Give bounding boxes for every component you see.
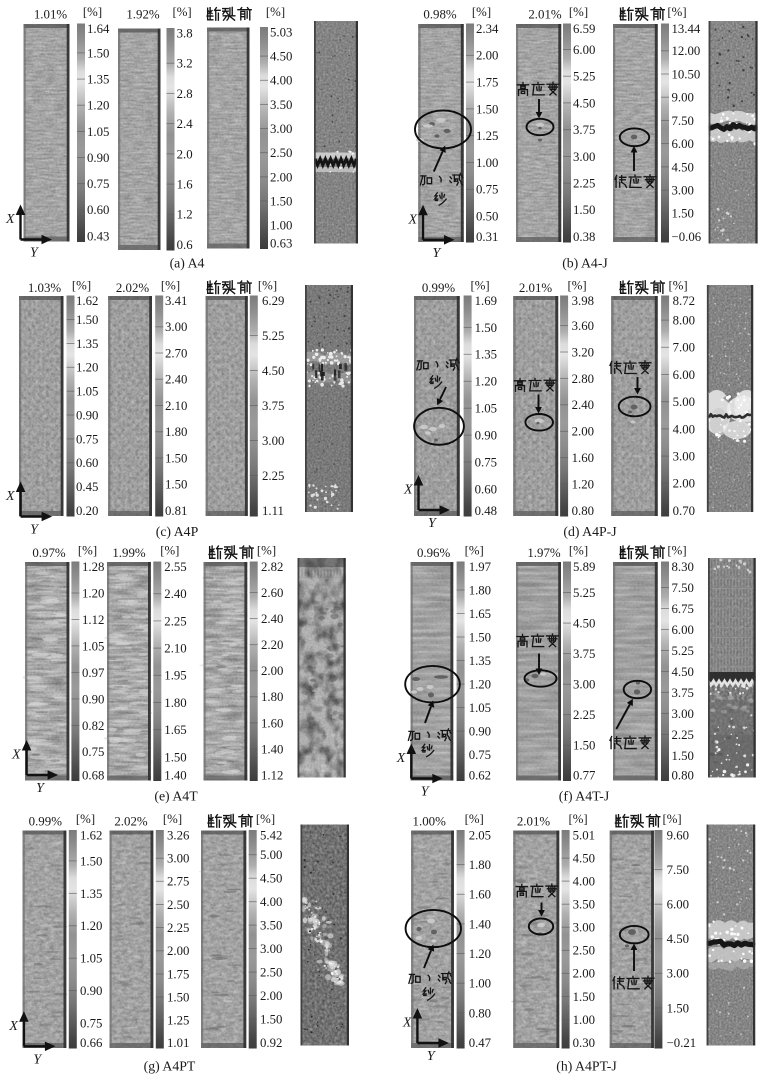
svg-text:[%]: [%] <box>266 5 285 19</box>
svg-text:0.98%: 0.98% <box>423 8 457 22</box>
svg-text:1.69: 1.69 <box>475 294 497 308</box>
svg-text:0.90: 0.90 <box>87 151 109 165</box>
svg-text:0.6: 0.6 <box>177 238 194 252</box>
svg-text:1.12: 1.12 <box>82 613 104 627</box>
svg-text:2.10: 2.10 <box>165 399 187 413</box>
svg-text:6.00: 6.00 <box>672 137 694 151</box>
svg-text:[%]: [%] <box>78 544 97 558</box>
svg-text:[%]: [%] <box>163 812 182 826</box>
svg-text:0.75: 0.75 <box>476 183 498 197</box>
svg-text:1.80: 1.80 <box>261 690 283 704</box>
svg-text:0.68: 0.68 <box>82 768 104 782</box>
svg-text:9.60: 9.60 <box>667 828 689 842</box>
svg-text:0.90: 0.90 <box>469 725 491 739</box>
svg-text:1.35: 1.35 <box>76 337 98 351</box>
svg-text:4.50: 4.50 <box>260 872 282 886</box>
svg-text:2.82: 2.82 <box>261 560 283 574</box>
svg-text:0.43: 0.43 <box>87 229 109 243</box>
svg-text:0.75: 0.75 <box>469 748 491 762</box>
svg-text:6.75: 6.75 <box>672 602 694 616</box>
svg-text:2.25: 2.25 <box>167 921 189 935</box>
svg-text:[%]: [%] <box>569 544 588 558</box>
svg-text:3.00: 3.00 <box>165 320 187 334</box>
svg-text:0.63: 0.63 <box>270 236 292 250</box>
svg-text:6.00: 6.00 <box>667 898 689 912</box>
svg-text:7.50: 7.50 <box>672 581 694 595</box>
svg-text:1.50: 1.50 <box>573 990 595 1004</box>
svg-text:3.00: 3.00 <box>573 678 595 692</box>
svg-text:3.50: 3.50 <box>260 919 282 933</box>
svg-text:1.50: 1.50 <box>672 207 694 221</box>
svg-text:(c) A4P: (c) A4P <box>156 524 199 540</box>
svg-text:2.00: 2.00 <box>270 170 292 184</box>
svg-text:1.50: 1.50 <box>573 739 595 753</box>
svg-text:−0.06: −0.06 <box>672 230 702 244</box>
svg-text:1.25: 1.25 <box>476 129 498 143</box>
svg-text:3.00: 3.00 <box>270 122 292 136</box>
svg-text:2.25: 2.25 <box>573 177 595 191</box>
svg-text:5.03: 5.03 <box>270 25 292 39</box>
svg-text:0.70: 0.70 <box>673 504 695 518</box>
svg-text:1.12: 1.12 <box>261 768 283 782</box>
svg-text:1.05: 1.05 <box>475 402 497 416</box>
svg-text:13.44: 13.44 <box>672 22 701 36</box>
svg-text:1.20: 1.20 <box>469 947 491 961</box>
svg-text:[%]: [%] <box>472 5 491 19</box>
svg-text:2.70: 2.70 <box>165 346 187 360</box>
svg-text:0.75: 0.75 <box>87 177 109 191</box>
svg-text:0.90: 0.90 <box>80 984 102 998</box>
svg-text:1.28: 1.28 <box>82 560 104 574</box>
svg-text:0.97: 0.97 <box>82 666 105 680</box>
svg-text:[%]: [%] <box>258 279 277 293</box>
svg-text:4.50: 4.50 <box>573 96 595 110</box>
svg-text:X: X <box>396 751 406 766</box>
svg-text:X: X <box>11 748 21 763</box>
svg-text:2.0: 2.0 <box>177 147 193 161</box>
svg-text:2.02%: 2.02% <box>114 815 148 829</box>
svg-text:3.41: 3.41 <box>165 294 187 308</box>
svg-text:1.20: 1.20 <box>87 99 109 113</box>
svg-text:[%]: [%] <box>72 279 91 293</box>
svg-text:4.50: 4.50 <box>672 665 694 679</box>
svg-text:1.20: 1.20 <box>572 478 594 492</box>
svg-text:8.00: 8.00 <box>673 314 695 328</box>
svg-text:5.42: 5.42 <box>260 828 282 842</box>
svg-text:2.25: 2.25 <box>262 469 284 483</box>
svg-text:1.00%: 1.00% <box>413 815 447 829</box>
svg-text:0.50: 0.50 <box>476 210 498 224</box>
svg-text:3.00: 3.00 <box>573 921 595 935</box>
svg-text:4.50: 4.50 <box>573 852 595 866</box>
svg-text:3.2: 3.2 <box>177 57 193 71</box>
svg-text:3.26: 3.26 <box>167 828 190 842</box>
svg-text:5.00: 5.00 <box>673 395 695 409</box>
svg-text:1.50: 1.50 <box>80 854 102 868</box>
svg-text:[%]: [%] <box>465 544 484 558</box>
svg-text:1.01: 1.01 <box>167 1036 189 1050</box>
svg-text:X: X <box>407 212 417 227</box>
svg-text:1.64: 1.64 <box>87 22 110 36</box>
svg-text:2.01%: 2.01% <box>519 281 553 295</box>
svg-text:3.75: 3.75 <box>573 647 595 661</box>
svg-text:1.80: 1.80 <box>469 583 491 597</box>
svg-text:[%]: [%] <box>667 544 686 558</box>
svg-text:1.35: 1.35 <box>475 348 497 362</box>
svg-text:12.00: 12.00 <box>672 44 701 58</box>
svg-text:7.50: 7.50 <box>672 114 694 128</box>
svg-text:0.75: 0.75 <box>76 432 98 446</box>
svg-text:2.00: 2.00 <box>261 664 283 678</box>
svg-text:1.01%: 1.01% <box>34 8 68 22</box>
svg-text:2.20: 2.20 <box>261 638 283 652</box>
svg-text:1.05: 1.05 <box>76 385 98 399</box>
svg-text:[%]: [%] <box>160 544 179 558</box>
svg-text:2.25: 2.25 <box>672 728 694 742</box>
svg-text:[%]: [%] <box>569 812 588 826</box>
svg-text:0.60: 0.60 <box>76 456 98 470</box>
svg-text:1.50: 1.50 <box>260 1012 282 1026</box>
svg-text:1.50: 1.50 <box>164 750 186 764</box>
svg-text:X: X <box>5 489 15 504</box>
svg-text:1.65: 1.65 <box>469 607 491 621</box>
svg-text:2.40: 2.40 <box>261 612 283 626</box>
svg-text:2.00: 2.00 <box>573 967 595 981</box>
svg-text:0.66: 0.66 <box>80 1036 103 1050</box>
svg-text:[%]: [%] <box>83 5 102 19</box>
svg-text:2.50: 2.50 <box>167 898 189 912</box>
svg-text:1.40: 1.40 <box>261 742 283 756</box>
svg-text:1.03%: 1.03% <box>28 281 62 295</box>
svg-text:2.10: 2.10 <box>164 642 186 656</box>
svg-text:1.50: 1.50 <box>165 451 187 465</box>
svg-text:2.50: 2.50 <box>573 944 595 958</box>
svg-text:5.00: 5.00 <box>260 848 282 862</box>
svg-text:0.60: 0.60 <box>87 203 109 217</box>
svg-text:2.05: 2.05 <box>469 828 491 842</box>
svg-text:1.05: 1.05 <box>82 639 104 653</box>
svg-text:1.75: 1.75 <box>476 76 498 90</box>
svg-text:1.20: 1.20 <box>469 678 491 692</box>
svg-text:1.00: 1.00 <box>469 977 491 991</box>
svg-text:3.60: 3.60 <box>572 319 594 333</box>
svg-text:0.80: 0.80 <box>572 504 594 518</box>
svg-text:X: X <box>8 1019 18 1034</box>
svg-text:[%]: [%] <box>669 279 688 293</box>
svg-text:1.50: 1.50 <box>165 478 187 492</box>
svg-text:0.97%: 0.97% <box>32 546 66 560</box>
svg-text:1.60: 1.60 <box>261 716 283 730</box>
svg-text:3.00: 3.00 <box>673 450 695 464</box>
svg-text:0.99%: 0.99% <box>422 281 456 295</box>
svg-text:1.95: 1.95 <box>164 669 186 683</box>
svg-text:3.00: 3.00 <box>262 434 284 448</box>
svg-text:1.2: 1.2 <box>177 208 193 222</box>
svg-text:5.25: 5.25 <box>573 586 595 600</box>
svg-text:[%]: [%] <box>471 279 490 293</box>
svg-text:[%]: [%] <box>663 812 682 826</box>
svg-text:1.99%: 1.99% <box>112 546 146 560</box>
svg-text:2.01%: 2.01% <box>528 8 562 22</box>
svg-text:5.25: 5.25 <box>573 70 595 84</box>
svg-text:1.92%: 1.92% <box>126 8 160 22</box>
svg-text:0.62: 0.62 <box>469 768 491 782</box>
svg-text:[%]: [%] <box>76 812 95 826</box>
svg-text:0.75: 0.75 <box>80 1016 102 1030</box>
svg-text:5.25: 5.25 <box>262 329 284 343</box>
svg-text:1.80: 1.80 <box>164 696 186 710</box>
svg-text:1.80: 1.80 <box>469 858 491 872</box>
svg-text:8.72: 8.72 <box>673 294 695 308</box>
svg-text:1.20: 1.20 <box>82 586 104 600</box>
svg-text:[%]: [%] <box>465 812 484 826</box>
svg-text:1.05: 1.05 <box>87 125 109 139</box>
svg-text:1.35: 1.35 <box>87 73 109 87</box>
svg-text:1.00: 1.00 <box>270 219 292 233</box>
svg-text:3.00: 3.00 <box>667 967 689 981</box>
svg-text:(e) A4T: (e) A4T <box>154 788 198 804</box>
svg-text:[%]: [%] <box>568 279 587 293</box>
svg-text:3.75: 3.75 <box>672 686 694 700</box>
svg-text:−0.21: −0.21 <box>667 1036 697 1050</box>
svg-text:1.35: 1.35 <box>469 654 491 668</box>
svg-text:2.02%: 2.02% <box>116 281 150 295</box>
svg-text:4.50: 4.50 <box>667 932 689 946</box>
svg-text:X: X <box>5 212 15 227</box>
svg-text:1.65: 1.65 <box>164 723 186 737</box>
svg-text:1.60: 1.60 <box>469 888 491 902</box>
svg-text:[%]: [%] <box>161 279 180 293</box>
svg-text:4.00: 4.00 <box>673 422 695 436</box>
svg-text:6.00: 6.00 <box>673 368 695 382</box>
svg-text:1.50: 1.50 <box>87 46 109 60</box>
svg-text:0.80: 0.80 <box>469 1006 491 1020</box>
svg-text:0.45: 0.45 <box>76 480 98 494</box>
svg-text:(h) A4PT-J: (h) A4PT-J <box>556 1058 617 1074</box>
svg-text:3.00: 3.00 <box>167 852 189 866</box>
svg-text:10.50: 10.50 <box>672 67 701 81</box>
svg-text:0.90: 0.90 <box>76 408 98 422</box>
svg-text:2.50: 2.50 <box>260 966 282 980</box>
svg-text:9.00: 9.00 <box>672 91 694 105</box>
svg-text:1.40: 1.40 <box>469 917 491 931</box>
svg-text:1.60: 1.60 <box>572 451 594 465</box>
svg-text:6.59: 6.59 <box>573 22 595 36</box>
svg-text:3.8: 3.8 <box>177 26 193 40</box>
svg-text:4.50: 4.50 <box>262 364 284 378</box>
svg-text:0.92: 0.92 <box>260 1036 282 1050</box>
svg-text:2.01%: 2.01% <box>517 815 551 829</box>
svg-text:(f) A4T-J: (f) A4T-J <box>559 788 610 804</box>
svg-text:(g) A4PT: (g) A4PT <box>144 1058 196 1074</box>
svg-text:2.00: 2.00 <box>167 944 189 958</box>
svg-text:1.50: 1.50 <box>76 313 98 327</box>
svg-text:1.50: 1.50 <box>167 991 189 1005</box>
svg-text:1.50: 1.50 <box>476 102 498 116</box>
svg-text:6.29: 6.29 <box>262 294 284 308</box>
svg-text:0.90: 0.90 <box>475 429 497 443</box>
svg-text:2.75: 2.75 <box>167 875 189 889</box>
svg-text:3.50: 3.50 <box>573 898 595 912</box>
svg-text:2.40: 2.40 <box>572 398 594 412</box>
svg-text:2.8: 2.8 <box>177 87 193 101</box>
svg-text:5.01: 5.01 <box>573 828 595 842</box>
svg-text:1.40: 1.40 <box>164 768 186 782</box>
svg-text:3.00: 3.00 <box>672 707 694 721</box>
svg-text:0.81: 0.81 <box>165 504 187 518</box>
svg-text:2.50: 2.50 <box>270 146 292 160</box>
svg-text:8.30: 8.30 <box>672 560 694 574</box>
svg-text:[%]: [%] <box>569 5 588 19</box>
svg-text:4.00: 4.00 <box>270 74 292 88</box>
svg-text:1.05: 1.05 <box>469 701 491 715</box>
svg-text:1.97: 1.97 <box>469 560 492 574</box>
svg-text:3.50: 3.50 <box>270 98 292 112</box>
svg-text:0.30: 0.30 <box>573 1036 595 1050</box>
svg-text:X: X <box>402 1016 412 1031</box>
svg-text:0.80: 0.80 <box>672 768 694 782</box>
svg-text:3.75: 3.75 <box>573 123 595 137</box>
svg-text:[%]: [%] <box>173 5 192 19</box>
svg-text:0.90: 0.90 <box>82 692 104 706</box>
svg-text:2.40: 2.40 <box>165 373 187 387</box>
svg-text:2.00: 2.00 <box>673 477 695 491</box>
svg-text:1.05: 1.05 <box>80 952 102 966</box>
svg-text:0.38: 0.38 <box>573 230 595 244</box>
svg-text:(d) A4P-J: (d) A4P-J <box>563 524 617 540</box>
svg-text:2.80: 2.80 <box>572 372 594 386</box>
svg-text:2.34: 2.34 <box>476 22 499 36</box>
svg-text:1.35: 1.35 <box>80 887 102 901</box>
svg-text:1.20: 1.20 <box>76 361 98 375</box>
svg-text:7.50: 7.50 <box>667 863 689 877</box>
svg-text:0.75: 0.75 <box>475 455 497 469</box>
svg-text:5.89: 5.89 <box>573 560 595 574</box>
svg-text:2.25: 2.25 <box>164 614 186 628</box>
svg-text:X: X <box>403 483 413 498</box>
svg-text:1.80: 1.80 <box>165 425 187 439</box>
svg-text:1.50: 1.50 <box>469 630 491 644</box>
svg-text:[%]: [%] <box>256 812 275 826</box>
svg-text:2.40: 2.40 <box>164 587 186 601</box>
svg-text:2.55: 2.55 <box>164 560 186 574</box>
svg-text:1.97%: 1.97% <box>527 546 561 560</box>
svg-text:4.00: 4.00 <box>260 895 282 909</box>
svg-text:(b) A4-J: (b) A4-J <box>562 255 608 271</box>
svg-text:1.50: 1.50 <box>270 194 292 208</box>
svg-text:2.00: 2.00 <box>260 989 282 1003</box>
svg-text:7.00: 7.00 <box>673 341 695 355</box>
svg-text:2.25: 2.25 <box>573 708 595 722</box>
svg-text:2.60: 2.60 <box>261 586 283 600</box>
svg-text:0.20: 0.20 <box>76 504 98 518</box>
svg-text:0.96%: 0.96% <box>417 546 451 560</box>
svg-text:4.00: 4.00 <box>573 875 595 889</box>
svg-text:6.00: 6.00 <box>573 43 595 57</box>
svg-text:3.20: 3.20 <box>572 345 594 359</box>
svg-text:2.00: 2.00 <box>476 49 498 63</box>
svg-text:3.00: 3.00 <box>672 184 694 198</box>
svg-text:0.82: 0.82 <box>82 719 104 733</box>
svg-text:5.25: 5.25 <box>672 644 694 658</box>
svg-text:2.4: 2.4 <box>177 117 194 131</box>
svg-text:0.77: 0.77 <box>573 768 596 782</box>
svg-text:1.50: 1.50 <box>667 1001 689 1015</box>
svg-text:0.47: 0.47 <box>469 1036 492 1050</box>
svg-text:1.50: 1.50 <box>475 321 497 335</box>
svg-text:4.50: 4.50 <box>573 617 595 631</box>
svg-text:0.75: 0.75 <box>82 745 104 759</box>
svg-text:1.75: 1.75 <box>167 967 189 981</box>
svg-text:0.99%: 0.99% <box>29 815 63 829</box>
svg-text:0.60: 0.60 <box>475 482 497 496</box>
svg-text:[%]: [%] <box>667 5 686 19</box>
svg-text:2.00: 2.00 <box>572 425 594 439</box>
svg-text:1.20: 1.20 <box>80 919 102 933</box>
svg-text:3.75: 3.75 <box>262 399 284 413</box>
svg-text:0.31: 0.31 <box>476 230 498 244</box>
svg-text:1.00: 1.00 <box>476 156 498 170</box>
svg-text:[%]: [%] <box>257 544 276 558</box>
svg-text:1.62: 1.62 <box>76 294 98 308</box>
svg-text:0.48: 0.48 <box>475 504 497 518</box>
svg-text:1.62: 1.62 <box>80 828 102 842</box>
svg-text:1.6: 1.6 <box>177 178 194 192</box>
svg-text:1.50: 1.50 <box>672 749 694 763</box>
svg-text:4.50: 4.50 <box>270 50 292 64</box>
svg-text:1.00: 1.00 <box>573 1013 595 1027</box>
svg-text:1.20: 1.20 <box>475 375 497 389</box>
svg-text:6.00: 6.00 <box>672 623 694 637</box>
svg-text:1.50: 1.50 <box>573 203 595 217</box>
svg-text:(a) A4: (a) A4 <box>170 255 205 271</box>
svg-text:3.00: 3.00 <box>260 942 282 956</box>
svg-text:3.98: 3.98 <box>572 294 594 308</box>
svg-text:4.50: 4.50 <box>672 160 694 174</box>
svg-text:1.11: 1.11 <box>262 504 284 518</box>
svg-text:3.00: 3.00 <box>573 150 595 164</box>
svg-text:1.25: 1.25 <box>167 1014 189 1028</box>
